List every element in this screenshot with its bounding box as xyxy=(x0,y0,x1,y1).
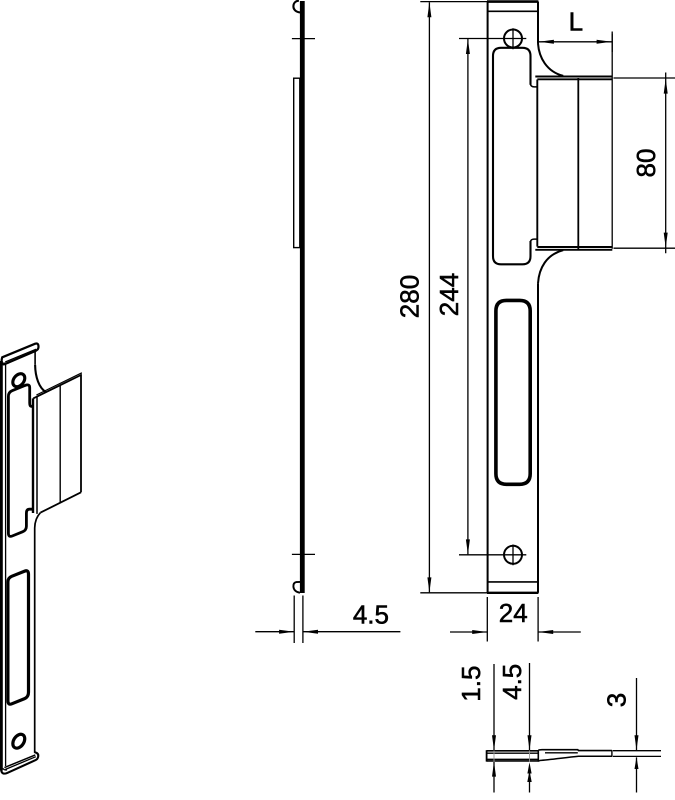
svg-text:280: 280 xyxy=(395,275,425,318)
svg-text:244: 244 xyxy=(434,273,464,316)
svg-text:4.5: 4.5 xyxy=(353,599,389,629)
svg-text:1.5: 1.5 xyxy=(456,666,486,702)
svg-text:4.5: 4.5 xyxy=(497,664,527,700)
svg-text:80: 80 xyxy=(631,149,661,178)
svg-text:3: 3 xyxy=(601,693,631,707)
svg-text:24: 24 xyxy=(499,598,528,628)
svg-text:L: L xyxy=(569,7,583,37)
